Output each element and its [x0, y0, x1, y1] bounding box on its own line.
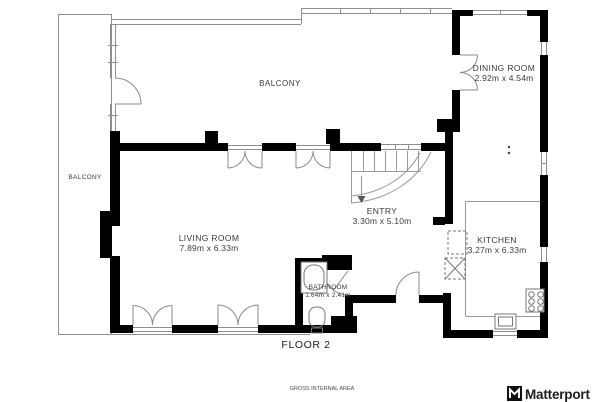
symbol-dots — [508, 146, 510, 154]
floorplan-canvas: BALCONY BALCONY DINING ROOM 2.92m x 4.54… — [0, 0, 604, 402]
floor-label: FLOOR 2 — [281, 339, 330, 351]
room-dims: 3.30m x 5.10m — [353, 217, 412, 227]
staircase — [351, 151, 431, 203]
matterport-logo: Matterport — [507, 386, 590, 402]
area-summary-title: GROSS INTERNAL AREA — [170, 386, 474, 392]
room-name: BATHROOM — [305, 284, 351, 292]
room-dims: 1.64m x 2.41m — [305, 292, 351, 300]
appliance-dashed-boxes — [445, 231, 467, 279]
sink-icon — [495, 314, 516, 329]
area-summary: GROSS INTERNAL AREA FLOOR 1 176.7 m² FLO… — [170, 374, 474, 402]
room-label-entry: ENTRY 3.30m x 5.10m — [353, 207, 412, 226]
room-dims: 7.89m x 6.33m — [179, 244, 240, 254]
stove-icon — [526, 289, 544, 312]
room-label-balcony-top: BALCONY — [259, 79, 301, 88]
room-label-dining-room: DINING ROOM 2.92m x 4.54m — [473, 64, 535, 83]
room-label-living-room: LIVING ROOM 7.89m x 6.33m — [179, 234, 240, 253]
room-label-bathroom: BATHROOM 1.64m x 2.41m — [305, 284, 351, 299]
matterport-logo-text: Matterport — [525, 387, 590, 402]
room-label-balcony-left: BALCONY — [68, 174, 101, 181]
room-dims: 2.92m x 4.54m — [473, 74, 535, 84]
room-label-kitchen: KITCHEN 3.27m x 6.33m — [468, 236, 527, 255]
matterport-m-icon — [507, 386, 522, 401]
room-dims: 3.27m x 6.33m — [468, 246, 527, 256]
